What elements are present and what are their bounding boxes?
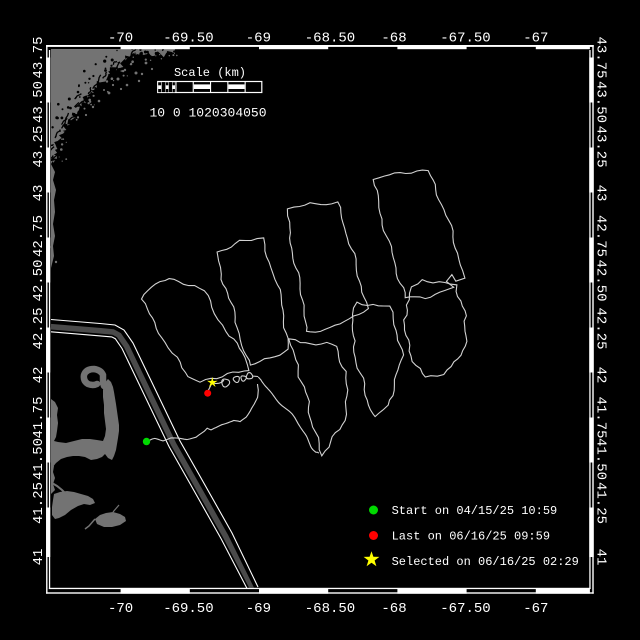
svg-text:-70: -70 xyxy=(108,30,133,46)
svg-text:42.25: 42.25 xyxy=(593,307,609,349)
svg-text:Scale (km): Scale (km) xyxy=(174,66,246,80)
svg-text:43: 43 xyxy=(31,185,47,202)
svg-text:41: 41 xyxy=(31,549,47,566)
svg-text:43.25: 43.25 xyxy=(593,126,609,168)
svg-text:41.50: 41.50 xyxy=(593,438,609,480)
svg-text:10 0 1020304050: 10 0 1020304050 xyxy=(150,106,267,121)
svg-text:-69.50: -69.50 xyxy=(163,30,213,46)
svg-text:Last on 06/16/25 09:59: Last on 06/16/25 09:59 xyxy=(392,530,550,544)
svg-text:Selected on 06/16/25 02:29: Selected on 06/16/25 02:29 xyxy=(392,555,579,569)
svg-text:41.25: 41.25 xyxy=(31,482,47,524)
svg-text:-68.50: -68.50 xyxy=(305,601,355,617)
svg-text:-67: -67 xyxy=(523,601,548,617)
svg-text:42.50: 42.50 xyxy=(593,259,609,301)
svg-text:-68.50: -68.50 xyxy=(305,30,355,46)
svg-text:42: 42 xyxy=(593,367,609,384)
svg-text:43.50: 43.50 xyxy=(593,81,609,123)
svg-text:-69: -69 xyxy=(246,30,271,46)
svg-text:-68: -68 xyxy=(381,601,406,617)
svg-text:42: 42 xyxy=(31,367,47,384)
svg-text:42.75: 42.75 xyxy=(593,215,609,257)
svg-text:41.25: 41.25 xyxy=(593,482,609,524)
svg-text:-69.50: -69.50 xyxy=(163,601,213,617)
svg-text:-67.50: -67.50 xyxy=(440,30,490,46)
svg-text:Start on 04/15/25 10:59: Start on 04/15/25 10:59 xyxy=(392,504,558,518)
svg-text:-67.50: -67.50 xyxy=(440,601,490,617)
svg-text:43.50: 43.50 xyxy=(31,81,47,123)
svg-text:41.50: 41.50 xyxy=(31,438,47,480)
svg-text:41: 41 xyxy=(593,549,609,566)
svg-text:42.25: 42.25 xyxy=(31,307,47,349)
svg-text:42.75: 42.75 xyxy=(31,215,47,257)
svg-text:-70: -70 xyxy=(108,601,133,617)
svg-text:41.75: 41.75 xyxy=(31,396,47,438)
svg-text:42.50: 42.50 xyxy=(31,259,47,301)
svg-text:-69: -69 xyxy=(246,601,271,617)
svg-text:-67: -67 xyxy=(523,30,548,46)
svg-text:43.25: 43.25 xyxy=(31,126,47,168)
svg-text:43.75: 43.75 xyxy=(593,36,609,78)
svg-text:-68: -68 xyxy=(381,30,406,46)
svg-text:43.75: 43.75 xyxy=(31,36,47,78)
svg-text:43: 43 xyxy=(593,185,609,202)
svg-text:41.75: 41.75 xyxy=(593,396,609,438)
